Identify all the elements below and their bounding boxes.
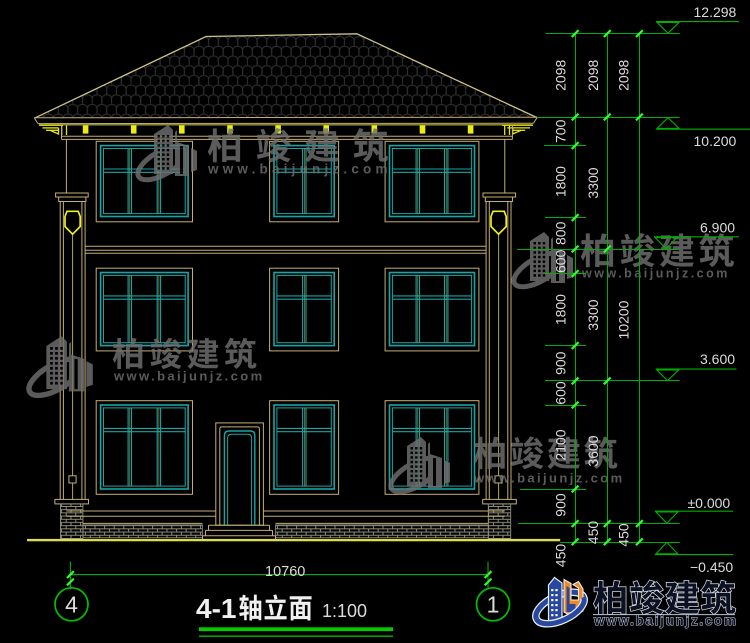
svg-text:www.baijunjz.com: www.baijunjz.com (473, 471, 625, 486)
svg-text:700: 700 (553, 119, 569, 143)
svg-text:6.900: 6.900 (700, 219, 735, 235)
svg-text:4: 4 (65, 592, 78, 618)
svg-text:www.baijunjz.com: www.baijunjz.com (581, 267, 730, 281)
svg-text:450: 450 (616, 523, 632, 547)
svg-text:10200: 10200 (616, 300, 632, 339)
svg-text:1: 1 (487, 592, 500, 618)
svg-text:3.600: 3.600 (700, 351, 735, 367)
svg-text:900: 900 (553, 351, 569, 375)
svg-text:600: 600 (553, 381, 569, 405)
svg-text:3300: 3300 (585, 299, 601, 330)
svg-text:800: 800 (553, 221, 569, 245)
svg-text:www.baijunjz.com: www.baijunjz.com (113, 369, 265, 384)
svg-text:1800: 1800 (553, 166, 569, 197)
svg-text:450: 450 (553, 544, 569, 568)
svg-text:2100: 2100 (553, 429, 569, 460)
svg-text:12.298: 12.298 (694, 4, 737, 20)
svg-text:450: 450 (585, 521, 601, 545)
svg-text:10.200: 10.200 (694, 133, 737, 149)
svg-text:2098: 2098 (553, 60, 569, 91)
svg-text:3600: 3600 (585, 435, 601, 466)
svg-text:1800: 1800 (553, 294, 569, 325)
svg-text:±0.000: ±0.000 (688, 495, 731, 511)
svg-text:10760: 10760 (265, 564, 305, 580)
svg-text:−0.450: −0.450 (690, 559, 733, 575)
svg-text:www.baijunjz.com: www.baijunjz.com (207, 162, 392, 177)
svg-text:600: 600 (553, 249, 569, 273)
svg-text:www.baijunjz.com: www.baijunjz.com (593, 613, 738, 628)
svg-text:900: 900 (553, 493, 569, 517)
svg-text:1:100: 1:100 (322, 601, 367, 621)
svg-text:4-1: 4-1 (196, 593, 236, 624)
svg-text:2098: 2098 (616, 60, 632, 91)
svg-text:3300: 3300 (585, 167, 601, 198)
svg-text:2098: 2098 (585, 60, 601, 91)
